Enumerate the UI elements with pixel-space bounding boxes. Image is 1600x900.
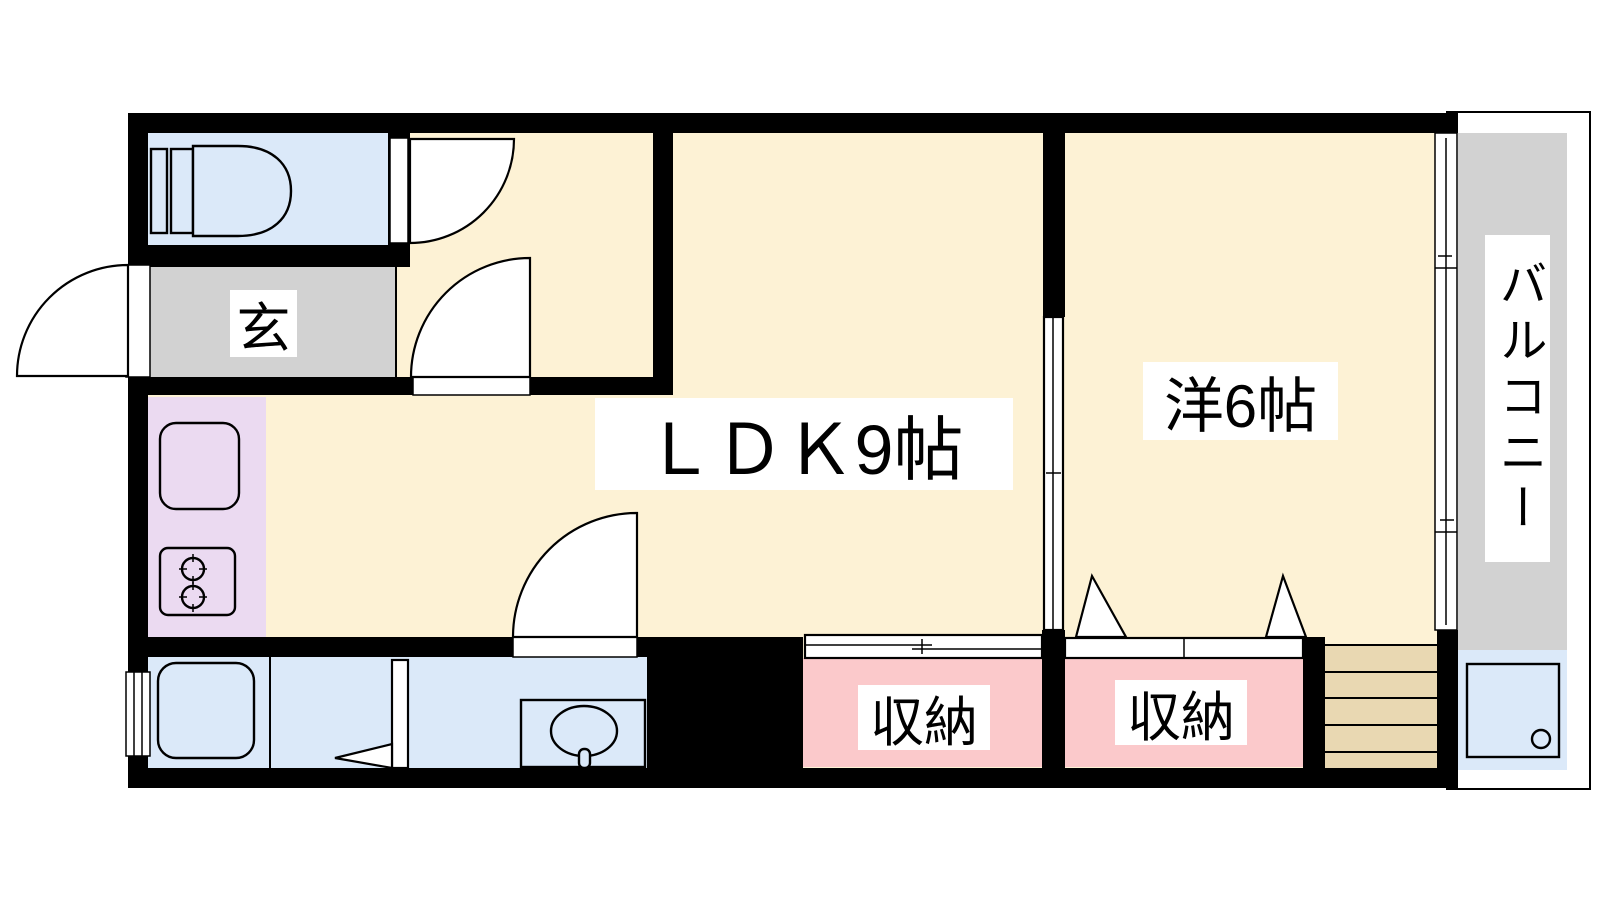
wall-top (128, 113, 1458, 133)
hall-door-opening (413, 377, 530, 395)
entrance-door-opening (126, 265, 150, 377)
entrance-door-swing (17, 265, 128, 376)
wall-closet-divider (1042, 630, 1065, 768)
ldk-western-sliding-door (1044, 317, 1063, 630)
washroom-door-opening (513, 637, 637, 657)
washbasin-icon (521, 700, 645, 768)
wall-hall-right (653, 113, 673, 395)
ldk-label: ＬＤＫ9帖 (595, 398, 1013, 490)
balcony-label: バルコニー (1485, 235, 1550, 562)
kitchen-sink-icon (160, 423, 239, 509)
toilet-door-opening (390, 138, 408, 243)
wall-bottom (128, 768, 1458, 788)
wall-stairs-left (1303, 637, 1325, 768)
gas-stove-icon (160, 548, 235, 615)
washing-machine-pan-icon (1467, 664, 1559, 757)
wall-block-center (647, 637, 803, 768)
floor-plan: 玄 ＬＤＫ9帖 洋6帖 収納 収納 バルコニー (0, 0, 1600, 900)
wall-hall-bottom (128, 377, 673, 395)
bathtub-icon (158, 663, 254, 758)
entrance-label: 玄 (230, 290, 297, 357)
wall-right-lower (1437, 630, 1458, 788)
western-room-label: 洋6帖 (1143, 362, 1338, 440)
balcony-sliding-window (1435, 133, 1457, 630)
stairs-floor (1325, 645, 1437, 768)
washroom-window (126, 672, 150, 756)
closet-left-sliding-door (805, 635, 1042, 658)
closet-left-label: 収納 (858, 685, 990, 750)
toilet-icon (151, 146, 291, 236)
wall-ldk-western (1043, 133, 1065, 317)
wall-toilet-bottom (128, 245, 410, 267)
closet-right-label: 収納 (1115, 680, 1247, 745)
